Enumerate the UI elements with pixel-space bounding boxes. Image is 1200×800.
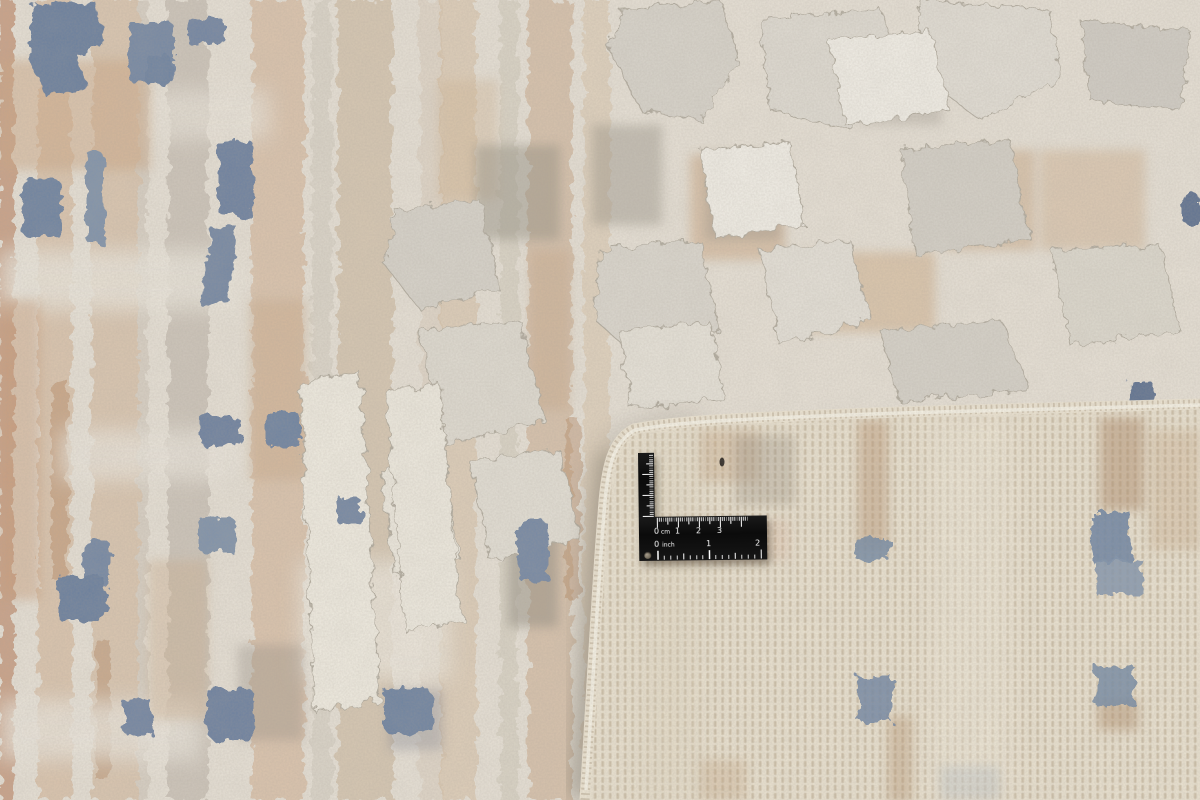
photo-frame: 0 cm 1 2 3 0 inch 1 2 [0, 0, 1200, 800]
ruler-cm-zero-label: 0 [654, 528, 659, 536]
measuring-ruler: 0 cm 1 2 3 0 inch 1 2 [638, 451, 768, 562]
ruler-inch-half-ticks [657, 552, 767, 560]
ruler-vertical-half-ticks [646, 455, 654, 517]
blotch-texture [0, 0, 1200, 800]
ruler-screw-hole [644, 552, 651, 559]
ruler-vertical-cm-ticks [642, 454, 654, 517]
ruler-cm-minor-ticks [657, 517, 748, 522]
ruler-cm-2-label: 2 [696, 527, 701, 535]
ruler-cm-ticks [657, 517, 749, 528]
ruler-cm-1-label: 1 [675, 527, 680, 535]
ruler-inch-zero-label: 0 [654, 541, 659, 549]
ruler-cm-3-label: 3 [717, 527, 722, 535]
ruler-inch-unit-label: inch [662, 542, 675, 548]
ruler-horizontal-arm: 0 cm 1 2 3 0 inch 1 2 [639, 515, 768, 561]
ruler-inch-1-label: 1 [706, 540, 711, 548]
rug-photo-illustration [0, 0, 1200, 800]
ruler-inch-2-label: 2 [755, 540, 760, 548]
ruler-vertical-minor-ticks [649, 455, 654, 517]
ruler-cm-unit-label: cm [661, 529, 670, 535]
ruler-cm-half-ticks [657, 517, 748, 525]
ruler-vertical-arm [638, 453, 655, 517]
ruler-inch-eighth-ticks [657, 554, 767, 559]
ruler-inch-ticks [657, 549, 767, 560]
